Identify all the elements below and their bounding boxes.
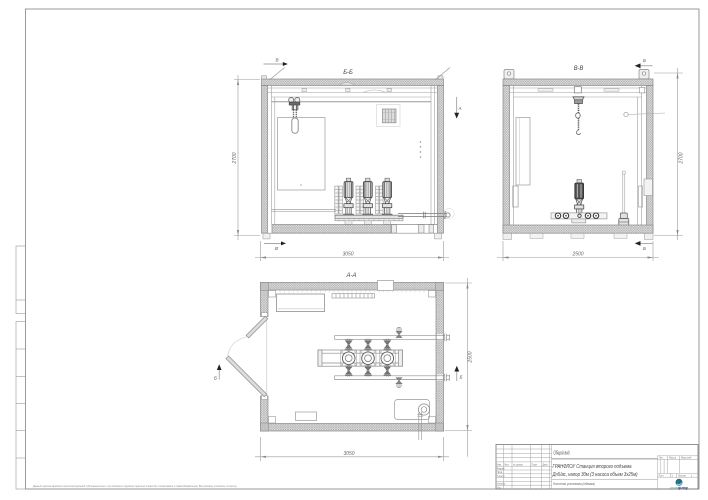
svg-text:Т.контр.: Т.контр. bbox=[497, 476, 506, 478]
svg-text:№ докум.: № докум. bbox=[513, 463, 523, 466]
svg-text:Масса: Масса bbox=[669, 457, 677, 460]
svg-text:Насосная установка (обвязка): Насосная установка (обвязка) bbox=[553, 482, 595, 486]
svg-text:Б-Б: Б-Б bbox=[343, 70, 353, 76]
svg-text:В: В bbox=[275, 246, 278, 251]
svg-text:Данный чертеж является интелле: Данный чертеж является интеллектуальной … bbox=[32, 484, 237, 488]
svg-text:флоу: флоу bbox=[678, 486, 689, 490]
svg-text:2500: 2500 bbox=[571, 252, 583, 258]
svg-text:гран: гран bbox=[670, 486, 678, 490]
svg-text:Лит.: Лит. bbox=[659, 457, 664, 460]
svg-text:Утв.: Утв. bbox=[497, 487, 502, 489]
svg-text:А-А: А-А bbox=[346, 273, 357, 279]
svg-text:Подп.: Подп. bbox=[532, 464, 538, 466]
svg-text:Н.контр.: Н.контр. bbox=[497, 484, 506, 486]
svg-text:Дн5/вс, напор 30м (3 насоса об: Дн5/вс, напор 30м (3 насоса объем 3х25м) bbox=[552, 472, 638, 478]
svg-text:Б: Б bbox=[214, 376, 217, 381]
svg-text:3050: 3050 bbox=[342, 252, 353, 258]
svg-text:Лист: Лист bbox=[659, 475, 665, 478]
svg-text:Б: Б bbox=[643, 58, 646, 63]
svg-text:2700: 2700 bbox=[679, 152, 685, 164]
svg-text:ГРАНФЛОУ Станция второго подъе: ГРАНФЛОУ Станция второго подъема bbox=[553, 464, 632, 470]
svg-text:Б: Б bbox=[643, 246, 646, 251]
svg-text:Масштаб: Масштаб bbox=[681, 457, 692, 460]
svg-text:Листов: Листов bbox=[678, 475, 686, 478]
svg-text:Б: Б bbox=[460, 375, 463, 380]
svg-text:В-В: В-В bbox=[574, 66, 584, 72]
svg-text:В: В bbox=[276, 58, 279, 63]
svg-text:2700: 2700 bbox=[232, 152, 238, 164]
svg-text:Пров.: Пров. bbox=[497, 472, 503, 474]
svg-text:а: а bbox=[300, 183, 302, 187]
svg-text:Разраб.: Разраб. bbox=[497, 468, 506, 470]
svg-text:3050: 3050 bbox=[343, 451, 354, 457]
svg-text:Дата: Дата bbox=[543, 464, 549, 466]
svg-text:2500: 2500 bbox=[468, 351, 474, 363]
svg-text:Общий вид: Общий вид bbox=[554, 450, 570, 457]
svg-text:А: А bbox=[458, 106, 462, 111]
svg-text:Изм.: Изм. bbox=[497, 464, 502, 466]
